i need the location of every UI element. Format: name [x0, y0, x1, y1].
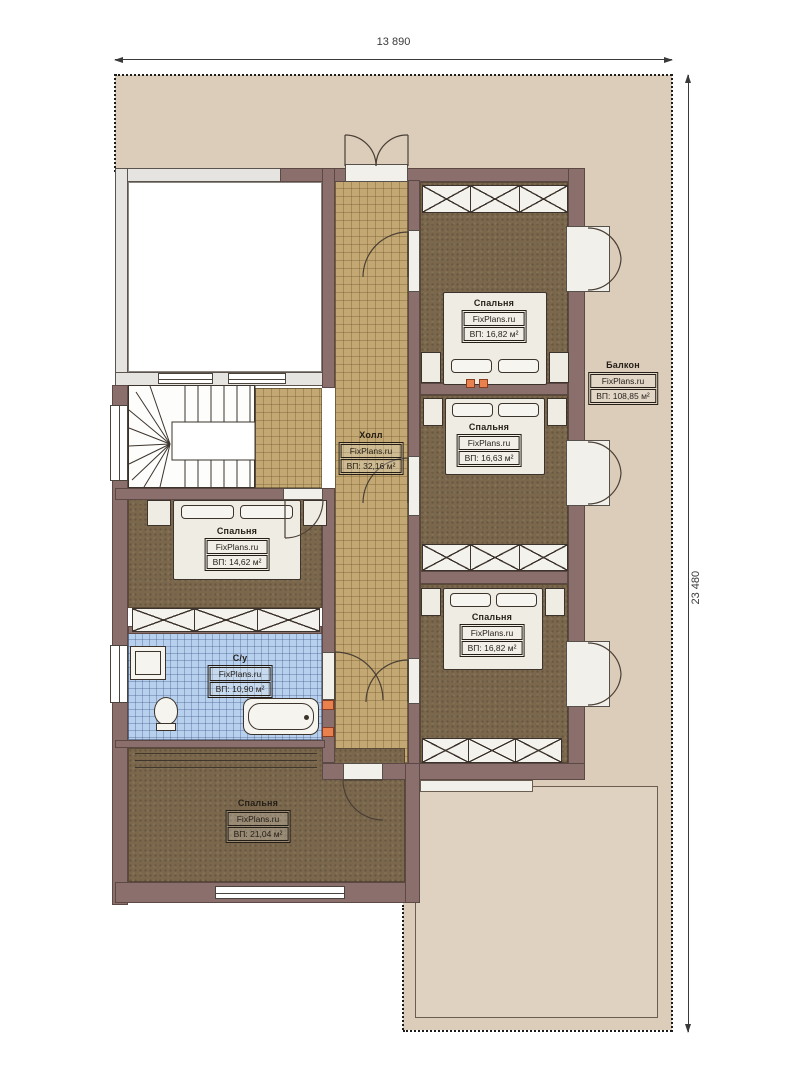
nightstand [421, 352, 441, 383]
dimension-right: 23 480 [682, 75, 704, 1032]
room-label-hall: Холл FixPlans.ru ВП: 32,16 м² [339, 430, 404, 475]
room-area: ВП: 16,63 м² [459, 451, 520, 465]
dimension-right-label: 23 480 [690, 570, 702, 604]
outlet-marker [322, 700, 334, 710]
site-boundary-right [671, 74, 673, 1032]
site-boundary-top [115, 74, 672, 76]
window [215, 886, 345, 899]
entry-door-threshold [345, 164, 408, 182]
wall [115, 372, 335, 386]
sink [130, 646, 166, 680]
room-label-bedroom-mid-right: Спальня FixPlans.ru ВП: 16,63 м² [457, 422, 522, 467]
site-boundary-left-terrace [402, 905, 404, 1030]
room-name: Спальня [205, 526, 270, 536]
dimension-top-label: 13 890 [115, 36, 672, 48]
brand-watermark: FixPlans.ru [590, 374, 656, 388]
window [228, 373, 286, 384]
french-door-sill-b3 [566, 641, 610, 707]
brand-watermark: FixPlans.ru [464, 312, 525, 326]
room-area: ВП: 16,82 м² [462, 641, 523, 655]
room-area: ВП: 14,62 м² [207, 555, 268, 569]
outlet-marker [322, 727, 334, 737]
site-band-top [115, 75, 672, 170]
room-name: Спальня [460, 612, 525, 622]
room-label-frame: Спальня FixPlans.ru ВП: 16,82 м² [460, 624, 525, 657]
room-label-frame: FixPlans.ru ВП: 16,82 м² [462, 310, 527, 343]
exterior-step [420, 780, 533, 792]
wardrobe [422, 544, 568, 571]
room-label-frame: FixPlans.ru ВП: 10,90 м² [208, 665, 273, 698]
beam-line [135, 753, 317, 754]
room-label-frame: FixPlans.ru ВП: 32,16 м² [339, 442, 404, 475]
toilet [153, 697, 179, 731]
wall [115, 168, 128, 385]
window [110, 405, 128, 481]
site-boundary-bottom [403, 1030, 672, 1032]
door-threshold-bathroom [322, 652, 335, 700]
stairwell-floor [128, 385, 255, 488]
wall-b2-b3 [420, 571, 568, 584]
window [110, 645, 128, 703]
room-name: Холл [339, 430, 404, 440]
room-label-frame: FixPlans.ru ВП: 16,63 м² [457, 434, 522, 467]
nightstand [303, 500, 327, 526]
room-label-balcony: Балкон FixPlans.ru ВП: 108,85 м² [588, 360, 658, 405]
outlet-marker [466, 379, 475, 388]
room-area: ВП: 21,04 м² [228, 827, 289, 841]
nightstand [421, 588, 441, 616]
room-area: ВП: 108,85 м² [590, 389, 656, 403]
room-label-frame: FixPlans.ru ВП: 14,62 м² [205, 538, 270, 571]
brand-watermark: FixPlans.ru [207, 540, 268, 554]
wall-bottombed-right [405, 763, 420, 903]
door-threshold-left-bedroom [283, 488, 323, 500]
brand-watermark: FixPlans.ru [462, 626, 523, 640]
nightstand [423, 398, 443, 426]
room-label-bedroom-bottom: Спальня FixPlans.ru ВП: 21,04 м² [226, 798, 291, 843]
floor-plan-canvas: Спальня FixPlans.ru ВП: 16,82 м² Спальня… [0, 0, 792, 1080]
brand-watermark: FixPlans.ru [210, 667, 271, 681]
room-label-bedroom-left: Спальня FixPlans.ru ВП: 14,62 м² [205, 526, 270, 571]
nightstand [547, 398, 567, 426]
wardrobe [422, 185, 568, 213]
room-name: Спальня [226, 798, 291, 808]
beam-line [135, 760, 317, 761]
room-label-frame: FixPlans.ru ВП: 21,04 м² [226, 810, 291, 843]
brand-watermark: FixPlans.ru [459, 436, 520, 450]
room-label-frame: FixPlans.ru ВП: 108,85 м² [588, 372, 658, 405]
door-threshold-bottom-bedroom [343, 763, 383, 780]
room-area: ВП: 32,16 м² [341, 459, 402, 473]
beam-line [135, 767, 317, 768]
site-boundary-left-top [114, 74, 116, 172]
dimension-top: 13 890 [115, 40, 672, 62]
door-threshold-b1 [408, 230, 420, 292]
wardrobe [422, 738, 562, 763]
wall-hall-left-b [322, 488, 335, 763]
room-area: ВП: 16,82 м² [464, 327, 525, 341]
brand-watermark: FixPlans.ru [228, 812, 289, 826]
outlet-marker [479, 379, 488, 388]
room-name: Спальня [462, 298, 527, 308]
nightstand [147, 500, 171, 526]
bathtub [243, 698, 319, 735]
room-name: Спальня [457, 422, 522, 432]
wall-bath-bottom [115, 740, 325, 748]
brand-watermark: FixPlans.ru [341, 444, 402, 458]
wall-hall-left-a [322, 168, 335, 388]
room-area: ВП: 10,90 м² [210, 682, 271, 696]
wardrobe [132, 608, 320, 632]
door-threshold-b3 [408, 658, 420, 704]
nightstand [545, 588, 565, 616]
room-name: С/у [208, 653, 273, 663]
french-door-sill-b1 [566, 226, 610, 292]
void-room-floor [128, 182, 322, 372]
stair-landing-floor [255, 388, 322, 488]
room-label-bedroom-top-right: Спальня FixPlans.ru ВП: 16,82 м² [462, 298, 527, 343]
window [158, 373, 213, 384]
room-label-bedroom-bottom-right: Спальня Спальня FixPlans.ru ВП: 16,82 м² [460, 612, 525, 657]
nightstand [549, 352, 569, 383]
french-door-sill-b2 [566, 440, 610, 506]
room-label-bathroom: С/у FixPlans.ru ВП: 10,90 м² [208, 653, 273, 698]
room-name: Балкон [588, 360, 658, 370]
terrace-outline [415, 786, 658, 1018]
door-threshold-b2 [408, 456, 420, 516]
